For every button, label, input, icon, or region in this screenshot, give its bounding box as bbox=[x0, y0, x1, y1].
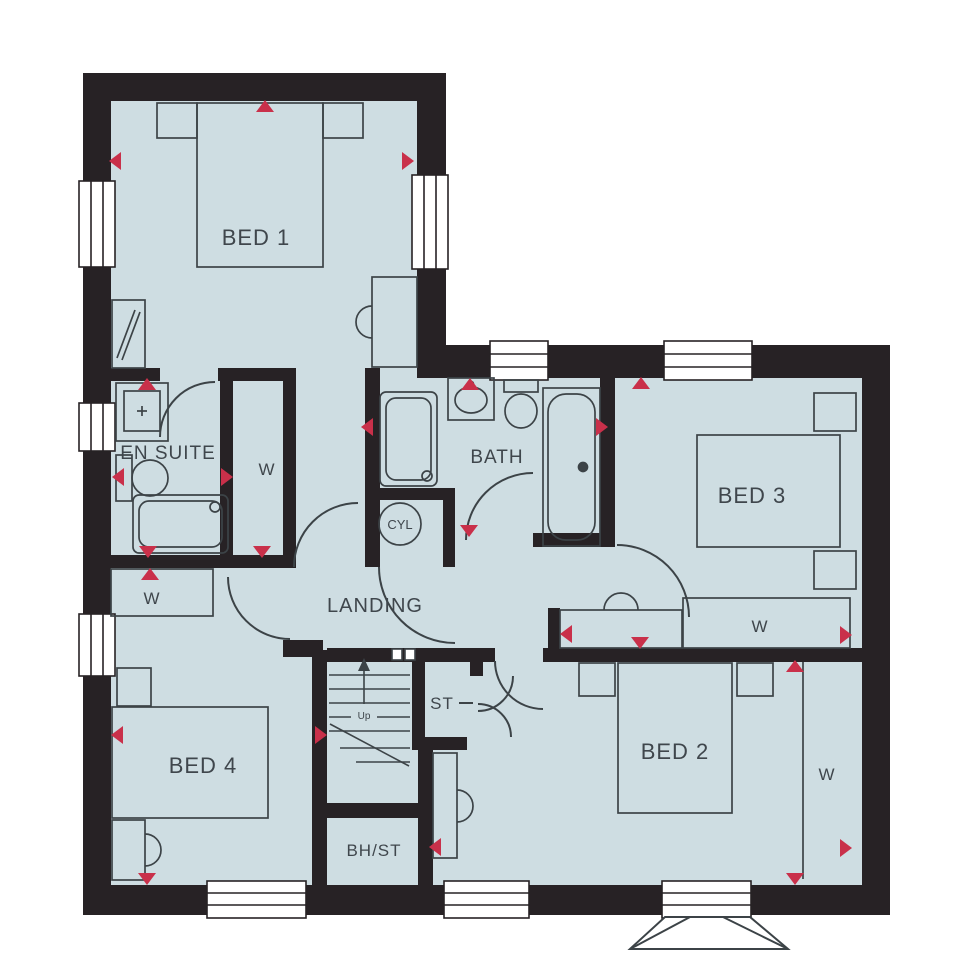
stairs-up-label: Up bbox=[358, 711, 371, 722]
wall-bed3-west-stub bbox=[548, 608, 560, 652]
wall-stairs-east bbox=[412, 650, 425, 750]
window-bed3-top bbox=[664, 341, 752, 380]
window-bed4-left bbox=[79, 614, 115, 676]
wall-stairs-west bbox=[312, 650, 327, 885]
wall-top-right-section bbox=[417, 345, 890, 378]
wall-right bbox=[862, 345, 890, 915]
room-label-bed3: BED 3 bbox=[718, 483, 787, 508]
wall-top-left-wing bbox=[83, 73, 446, 101]
window-bath-top bbox=[490, 341, 548, 380]
room-label-bath: BATH bbox=[470, 447, 523, 468]
wall-ensuite-bottom bbox=[111, 555, 296, 568]
porch-canopy bbox=[630, 917, 788, 949]
window-bed4-bottom bbox=[207, 881, 306, 918]
wall-bed3-bed2-divider bbox=[543, 648, 862, 662]
stairs-newel-post bbox=[405, 649, 415, 660]
wall-store-east-stub bbox=[470, 662, 483, 676]
wall-cyl-east bbox=[443, 488, 455, 567]
stairs-newel-post bbox=[392, 649, 402, 660]
wardrobe-label-bed3: W bbox=[751, 617, 768, 636]
bath-tub-tap-icon bbox=[579, 463, 588, 472]
window-ensuite-left bbox=[79, 403, 115, 451]
room-label-en-suite: EN SUITE bbox=[120, 443, 216, 464]
window-bed2-bottom-left bbox=[444, 881, 529, 918]
room-label-bhst: BH/ST bbox=[346, 841, 401, 860]
room-label-bed1: BED 1 bbox=[222, 225, 291, 250]
window-bed1-left bbox=[79, 181, 115, 267]
wall-closet-right bbox=[283, 368, 296, 567]
room-label-bed4: BED 4 bbox=[169, 753, 238, 778]
wall-bath-east bbox=[600, 378, 615, 547]
room-label-landing: LANDING bbox=[327, 595, 423, 617]
room-label-bed2: BED 2 bbox=[641, 739, 710, 764]
room-label-st: ST bbox=[430, 694, 454, 713]
window-bed1-right bbox=[412, 175, 448, 269]
wall-bhst-top bbox=[312, 803, 433, 818]
wardrobe-label-bed4: W bbox=[143, 589, 160, 608]
floorplan-drawing: BED 1 EN SUITE BATH BED 3 LANDING CYL BE… bbox=[0, 0, 980, 966]
wall-bhst-east bbox=[418, 750, 433, 885]
wall-store-bottom bbox=[412, 737, 467, 750]
wall-ensuite-top bbox=[111, 368, 160, 381]
room-label-cyl: CYL bbox=[387, 517, 412, 532]
floorplan-page: BED 1 EN SUITE BATH BED 3 LANDING CYL BE… bbox=[0, 0, 980, 966]
wall-bath-west bbox=[365, 368, 380, 567]
wardrobe-label-bed1: W bbox=[258, 460, 275, 479]
wardrobe-label-bed2: W bbox=[818, 765, 835, 784]
window-bed2-bottom-right bbox=[662, 881, 751, 918]
